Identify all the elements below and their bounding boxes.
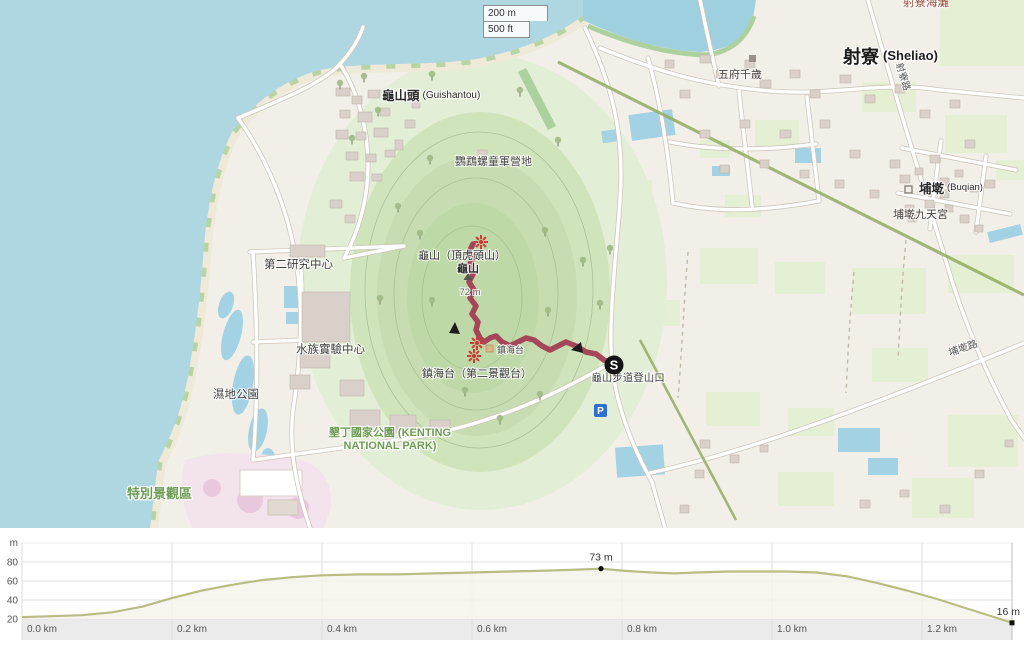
poi-label-aquarium-lab: 水族實驗中心: [296, 342, 365, 356]
pond: [286, 312, 298, 324]
parking-icon-letter: P: [597, 406, 604, 417]
circle: [462, 387, 468, 393]
map-canvas[interactable]: 射寮海灘 射寮(Sheliao) 龜山頭(Guishantou) 埔墘(Buqi…: [0, 0, 1024, 528]
circle: [337, 80, 343, 86]
building: [346, 152, 358, 160]
poi-label-guishan-peak-alt: 龜山（頂虎頭山）: [418, 249, 506, 262]
building: [900, 175, 910, 183]
building: [358, 112, 372, 122]
poi-label-guishan: 龜山: [457, 261, 479, 275]
building: [930, 155, 940, 163]
building: [900, 490, 909, 497]
building: [405, 120, 415, 128]
pond: [838, 428, 880, 452]
building: [374, 128, 388, 137]
building: [336, 88, 350, 96]
building: [290, 375, 310, 389]
building: [860, 500, 870, 508]
building: [915, 168, 923, 175]
viewpoint-icon[interactable]: [470, 336, 484, 350]
scalebar-metric: 200 m: [483, 5, 548, 21]
building: [835, 180, 844, 188]
building: [330, 200, 342, 208]
building: [350, 172, 364, 181]
building: [740, 120, 750, 128]
building: [940, 505, 950, 513]
building: [720, 165, 729, 173]
profile-end-marker: [1010, 620, 1015, 625]
elevation-label-72m: 72 m: [459, 287, 480, 298]
building: [870, 190, 879, 198]
field: [706, 392, 760, 426]
x-axis-strip: [22, 619, 1012, 640]
building: [340, 110, 350, 118]
poi-label-wufu-temple: 五府千歲: [718, 67, 762, 81]
y-tick-label: 40: [7, 596, 19, 607]
circle: [349, 135, 355, 141]
building: [960, 215, 969, 223]
field: [778, 472, 834, 506]
y-tick-label: 80: [7, 558, 19, 569]
circle: [377, 295, 383, 301]
viewpoint-icon[interactable]: [474, 235, 488, 249]
start-marker-letter: S: [610, 358, 619, 373]
poi-label-wetland-park: 濕地公園: [213, 388, 259, 401]
building: [780, 130, 791, 138]
building: [395, 140, 403, 150]
field: [700, 248, 758, 284]
clipped-poi-label: 射寮海灘: [903, 0, 949, 9]
building: [955, 170, 963, 177]
profile-peak-marker: [598, 566, 603, 571]
elevation-profile-chart[interactable]: m204060800.0 km0.2 km0.4 km0.6 km0.8 km1…: [0, 528, 1024, 648]
elevation-area: [22, 569, 1012, 623]
building: [385, 150, 395, 157]
x-tick-label: 1.2 km: [927, 624, 957, 635]
y-axis-unit: m: [10, 538, 18, 549]
building: [352, 96, 362, 104]
building: [840, 75, 851, 83]
map-scalebar: 200 m 500 ft: [483, 5, 548, 38]
building: [920, 110, 930, 118]
x-tick-label: 0.6 km: [477, 624, 507, 635]
circle: [427, 155, 433, 161]
building: [290, 245, 325, 257]
building: [810, 90, 820, 98]
circle: [542, 227, 548, 233]
field: [872, 348, 928, 382]
building: [890, 160, 900, 168]
circle: [607, 245, 613, 251]
field: [725, 195, 761, 217]
building: [366, 154, 376, 162]
building: [665, 60, 674, 68]
page: 射寮海灘 射寮(Sheliao) 龜山頭(Guishantou) 埔墘(Buqi…: [0, 0, 1024, 648]
parking-icon[interactable]: P: [594, 404, 607, 417]
building: [700, 440, 710, 448]
building: [820, 120, 830, 128]
building: [700, 55, 711, 63]
circle: [429, 71, 435, 77]
map-container: 射寮海灘 射寮(Sheliao) 龜山頭(Guishantou) 埔墘(Buqi…: [0, 0, 1024, 528]
area-label-kenting-1: 墾丁國家公園 (KENTING: [329, 425, 451, 439]
area-label-kenting-2: NATIONAL PARK): [344, 440, 437, 452]
x-tick-label: 0.8 km: [627, 624, 657, 635]
building: [302, 292, 350, 342]
field: [755, 120, 799, 146]
field: [775, 262, 825, 294]
poi-label-scout-camp: 鸚鵡螺童軍營地: [455, 154, 532, 168]
circle: [361, 73, 367, 79]
circle: [545, 307, 551, 313]
y-tick-label: 20: [7, 615, 19, 626]
building: [700, 130, 710, 138]
circle: [395, 203, 401, 209]
circle: [497, 415, 503, 421]
building: [975, 470, 984, 478]
profile-annotation: 16 m: [997, 606, 1021, 618]
circle: [517, 87, 523, 93]
circle: [429, 297, 435, 303]
circle: [597, 300, 603, 306]
x-tick-label: 0.0 km: [27, 624, 57, 635]
building: [340, 380, 364, 396]
building: [368, 90, 380, 98]
circle: [479, 240, 483, 244]
field: [852, 268, 926, 314]
building: [950, 100, 960, 108]
circle: [537, 391, 543, 397]
building: [1005, 440, 1013, 447]
building: [760, 80, 771, 88]
building: [925, 200, 934, 208]
building: [380, 108, 390, 116]
poi-label-zhenhai-platform: 鎮海台（第二景觀台）: [422, 366, 532, 380]
circle: [375, 107, 381, 113]
building: [760, 445, 768, 452]
poi-label-research-center: 第二研究中心: [264, 257, 333, 271]
building: [800, 170, 809, 178]
temple-icon: [749, 55, 756, 62]
x-tick-label: 0.4 km: [327, 624, 357, 635]
place-label-guishantou: 龜山頭(Guishantou): [382, 88, 480, 103]
building: [790, 70, 800, 78]
building: [680, 90, 690, 98]
building: [695, 470, 704, 478]
circle: [472, 354, 476, 358]
building: [372, 174, 382, 181]
field: [945, 115, 1007, 153]
building: [760, 160, 769, 168]
area-label-special-scenic: 特別景觀區: [127, 486, 192, 501]
poi-label-zhenhai-small: 鎮海台: [497, 344, 524, 355]
building: [680, 505, 689, 513]
start-marker[interactable]: S: [605, 356, 624, 375]
circle: [555, 137, 561, 143]
building: [345, 215, 355, 223]
x-tick-label: 1.0 km: [777, 624, 807, 635]
building: [865, 95, 875, 103]
pond: [868, 458, 898, 475]
viewpoint-icon[interactable]: [467, 349, 481, 363]
scalebar-imperial: 500 ft: [483, 21, 530, 38]
y-tick-label: 60: [7, 577, 19, 588]
field: [940, 0, 1024, 66]
poi-label-buqian-temple: 埔墘九天宮: [893, 207, 948, 221]
building: [985, 180, 995, 188]
building: [975, 225, 983, 232]
building: [356, 132, 366, 140]
poi-label-trailhead: 龜山步道登山口: [591, 371, 665, 384]
building: [850, 150, 860, 158]
elevation-profile-panel: m204060800.0 km0.2 km0.4 km0.6 km0.8 km1…: [0, 528, 1024, 648]
shelter-icon: [486, 345, 493, 352]
pond: [795, 148, 821, 163]
circle: [417, 230, 423, 236]
circle: [580, 257, 586, 263]
building: [730, 455, 739, 463]
circle: [475, 341, 479, 345]
profile-annotation: 73 m: [589, 552, 613, 564]
x-tick-label: 0.2 km: [177, 624, 207, 635]
building: [965, 140, 975, 148]
building: [336, 130, 348, 139]
